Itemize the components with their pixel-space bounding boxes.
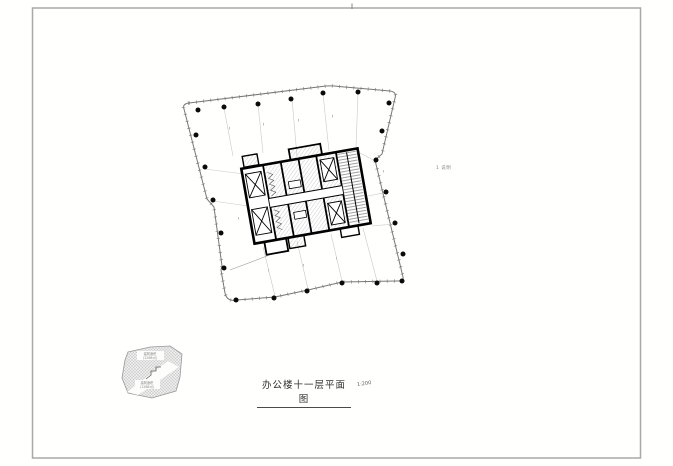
column-dot bbox=[340, 281, 345, 286]
column-dot bbox=[400, 279, 405, 284]
column-dot bbox=[393, 221, 398, 226]
column-dot bbox=[234, 298, 239, 303]
column-dot bbox=[272, 296, 277, 301]
column-dot bbox=[194, 133, 199, 138]
column-dot bbox=[211, 198, 216, 203]
column-dot bbox=[374, 158, 379, 163]
column-dot bbox=[387, 101, 392, 106]
service-core bbox=[239, 137, 373, 257]
column-dot bbox=[203, 165, 208, 170]
keyplan-label-bottom-line2: (1268㎡) bbox=[140, 384, 154, 389]
column-dot bbox=[222, 105, 227, 110]
column-dot bbox=[384, 190, 389, 195]
column-dot bbox=[256, 102, 261, 107]
column-dot bbox=[305, 289, 310, 294]
column-dot bbox=[222, 266, 227, 271]
column-dot bbox=[321, 91, 326, 96]
lobby-fixture bbox=[294, 210, 307, 219]
column-dot bbox=[375, 281, 380, 286]
column-dot bbox=[219, 231, 224, 236]
column-dot bbox=[356, 90, 361, 95]
column-dot bbox=[289, 97, 294, 102]
lobby-fixture bbox=[288, 180, 301, 189]
keyplan-label-top-line2: (2268㎡) bbox=[143, 355, 157, 360]
drawing-title: 办公楼十一层平面图 bbox=[257, 377, 351, 408]
column-dot bbox=[196, 108, 201, 113]
column-dot bbox=[380, 129, 385, 134]
column-dot bbox=[401, 252, 406, 257]
key-plan: 建筑面积 (2268㎡) 建筑面积 (1268㎡) bbox=[122, 346, 182, 398]
plan-note: 1 说明 bbox=[436, 165, 451, 171]
drawing-sheet: 建筑面积 (2268㎡) 建筑面积 (1268㎡) 办公楼十一层平面图 1:20… bbox=[0, 0, 673, 466]
